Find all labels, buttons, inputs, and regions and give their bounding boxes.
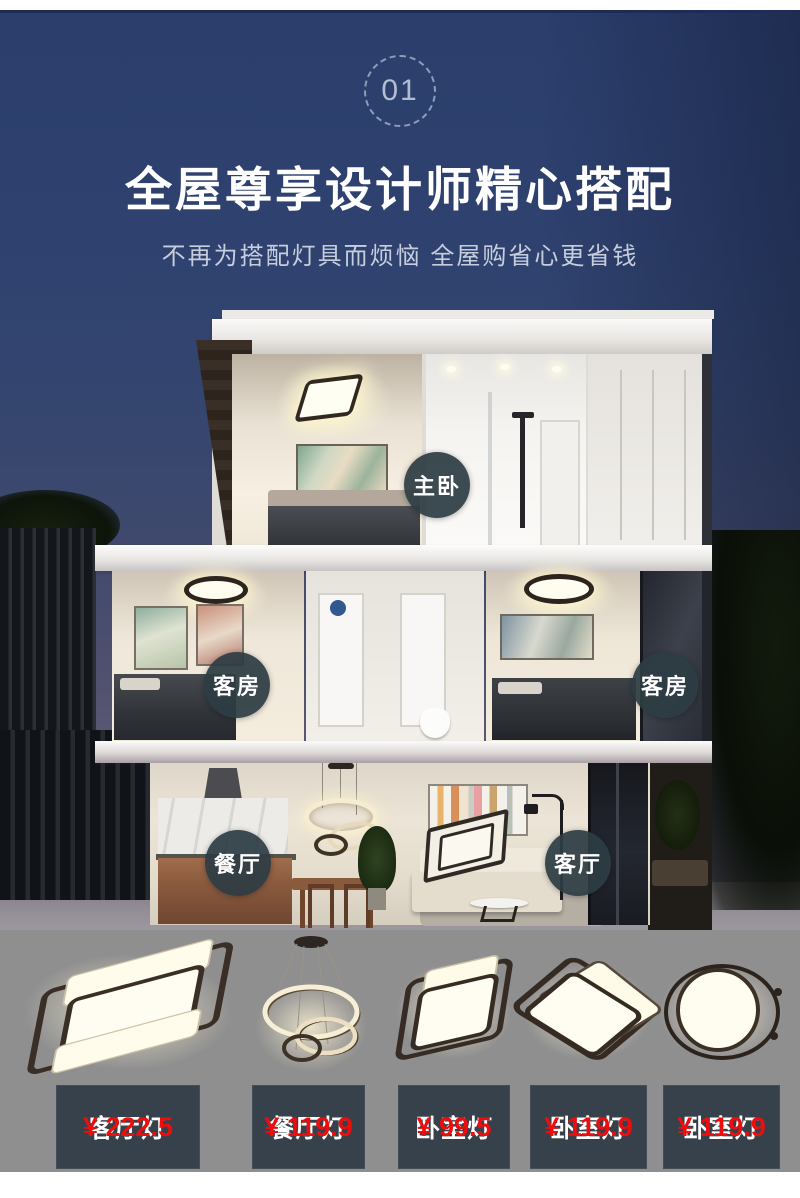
product-card-living-room-lamp: 客厅灯 ¥ 222.5 — [56, 1085, 200, 1169]
patio-bench — [652, 860, 708, 886]
top-white-strip — [0, 0, 800, 10]
section-number: 01 — [381, 74, 418, 108]
room-label-text: 餐厅 — [214, 847, 262, 879]
bottom-white-strip — [0, 1172, 800, 1198]
recessed-light — [500, 364, 510, 370]
wall-art — [296, 444, 388, 492]
indoor-plant — [358, 826, 396, 892]
door — [400, 593, 446, 727]
glass-door-mullion — [616, 763, 619, 925]
toilet — [420, 708, 450, 738]
promo-page: 01 全屋尊享设计师精心搭配 不再为搭配灯具而烦恼 全屋购省心更省钱 — [0, 0, 800, 1198]
house-cutaway-scene: 主卧 客房 客房 餐厅 客厅 — [0, 300, 800, 930]
room-label-guest-room-right: 客房 — [632, 652, 698, 718]
room-label-text: 客房 — [213, 669, 261, 701]
wardrobe-door-line — [620, 370, 622, 540]
section-number-badge: 01 — [364, 55, 436, 127]
pillow — [498, 682, 542, 694]
shower-column — [520, 418, 525, 528]
product-image-double-square-ceiling-lamp — [518, 952, 656, 1070]
mirror — [330, 600, 346, 616]
product-image-rect-ceiling-lamp — [22, 942, 234, 1082]
room-label-living-room: 客厅 — [545, 830, 611, 896]
page-title: 全屋尊享设计师精心搭配 — [0, 151, 800, 220]
product-price: ¥ 119.9 — [544, 1112, 633, 1143]
round-ceiling-lamp — [184, 576, 248, 604]
room-label-dining-room: 餐厅 — [205, 830, 271, 896]
product-strip: 客厅灯 ¥ 222.5 餐厅灯 ¥ 119.9 卧室灯 ¥ 99.5 卧室灯 ¥… — [0, 930, 800, 1172]
product-image-square-ceiling-lamp — [394, 952, 514, 1070]
wall-art — [134, 606, 188, 670]
shower-head — [512, 412, 534, 418]
coffee-table-legs — [480, 906, 518, 922]
floor-slab — [95, 741, 712, 763]
roof-parapet — [222, 310, 714, 319]
page-subtitle: 不再为搭配灯具而烦恼 全屋购省心更省钱 — [0, 236, 800, 271]
room-label-guest-room-left: 客房 — [204, 652, 270, 718]
recessed-light — [446, 366, 456, 372]
round-ceiling-lamp — [524, 574, 594, 604]
product-card-bedroom-lamp-1: 卧室灯 ¥ 99.5 — [398, 1085, 510, 1169]
tree-silhouette — [700, 530, 800, 910]
wall-art — [500, 614, 594, 660]
table-leg — [300, 890, 305, 928]
floor-lamp — [524, 804, 538, 814]
pendant-canopy — [328, 763, 354, 769]
room-label-text: 主卧 — [413, 469, 461, 501]
product-image-ring-pendant-lamp — [252, 932, 370, 1082]
roof-slab — [212, 319, 712, 354]
product-price: ¥ 222.5 — [83, 1112, 173, 1143]
dining-chair — [308, 884, 334, 928]
window-frame — [702, 354, 712, 554]
product-price: ¥ 99.5 — [416, 1112, 491, 1143]
product-card-dining-lamp: 餐厅灯 ¥ 119.9 — [252, 1085, 365, 1169]
pillow — [120, 678, 160, 690]
ring-pendant-lamp — [314, 834, 348, 856]
product-image-round-ceiling-lamp — [656, 958, 786, 1066]
recessed-light — [552, 366, 562, 372]
shower-glass — [488, 392, 492, 552]
hero-section: 01 全屋尊享设计师精心搭配 不再为搭配灯具而烦恼 全屋购省心更省钱 — [0, 13, 800, 930]
product-card-bedroom-lamp-3: 卧室灯 ¥ 119.9 — [663, 1085, 780, 1169]
room-label-text: 客房 — [641, 669, 689, 701]
product-card-bedroom-lamp-2: 卧室灯 ¥ 119.9 — [530, 1085, 647, 1169]
plant-pot — [368, 888, 386, 910]
room-label-text: 客厅 — [554, 847, 602, 879]
product-price: ¥ 119.9 — [264, 1112, 353, 1143]
product-price: ¥ 119.9 — [677, 1112, 766, 1143]
bathroom-door — [540, 420, 580, 552]
room-label-master-bedroom: 主卧 — [404, 452, 470, 518]
patio-plant — [655, 780, 700, 850]
wardrobe-door-line — [652, 370, 654, 540]
dining-chair — [344, 884, 370, 928]
wardrobe-door-line — [684, 370, 686, 540]
window-frame — [702, 571, 712, 741]
